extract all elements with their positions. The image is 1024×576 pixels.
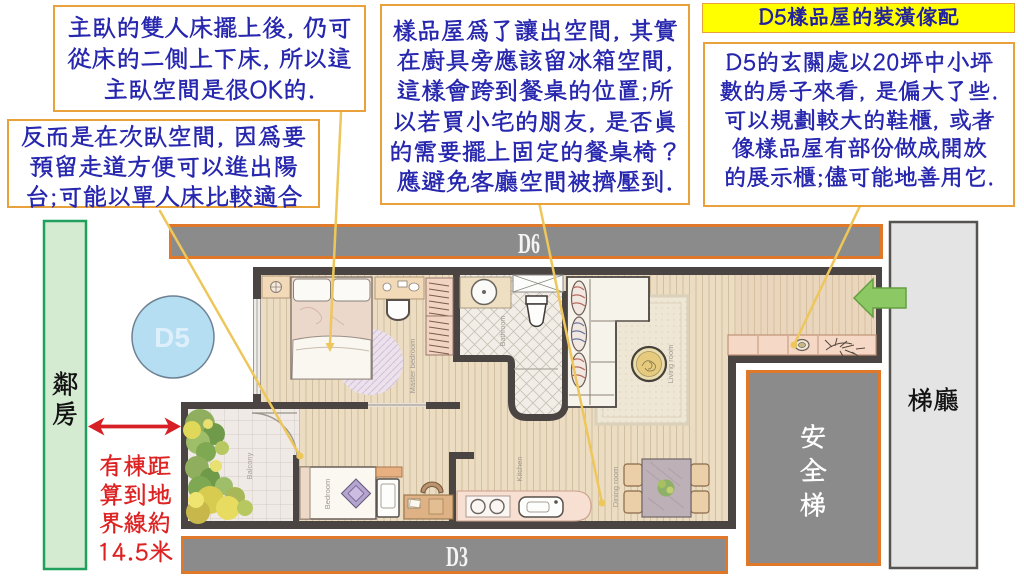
svg-text:D3: D3 [446,541,468,573]
svg-text:D5: D5 [154,322,190,353]
svg-text:Living room: Living room [666,345,675,384]
svg-text:Balcony: Balcony [245,452,254,479]
svg-text:Dining room: Dining room [611,467,620,507]
svg-text:D6: D6 [518,228,540,260]
svg-text:Master bedroom: Master bedroom [408,339,417,394]
svg-text:Bedroom: Bedroom [323,479,332,509]
svg-text:Bathroom: Bathroom [500,316,507,347]
svg-text:Kitchen: Kitchen [515,456,524,481]
